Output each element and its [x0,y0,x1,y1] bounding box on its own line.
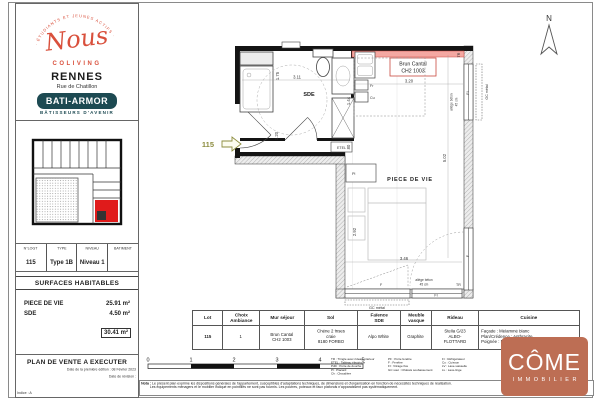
guardrail-right [476,64,482,120]
svg-text:CH2 1003: CH2 1003 [401,69,424,75]
col-header-choix: Choix Ambiance [230,313,252,323]
cell-rideau: Stella G/23 ALBO-FLOTTARD [438,330,471,345]
type-header: TYPE [57,247,66,251]
builder-tagline: BÂTISSEURS D'AVENIR [31,111,123,116]
legend-item: GC sout : Châssis soubassement [388,369,433,373]
room-label-piece-de-vie: PIECE DE VIE [387,177,433,183]
col-header-meuble: Meuble vasque [408,313,424,323]
surfaces-block: SURFACES HABITABLES PIECE DE VIE 25.91 m… [16,272,138,354]
svg-text:allège béton: allège béton [415,278,433,282]
surface-total: 30.41 m² [101,328,131,338]
come-immobilier-logo: CÔME IMMOBILIER [501,337,588,396]
come-logo-text: CÔME [508,350,581,374]
svg-text:3: 3 [275,358,278,364]
fridge-label: Fr [370,84,374,88]
sidebar-footer: PLAN DE VENTE A EXECUTER Date de la prem… [16,354,138,397]
svg-text:1.44: 1.44 [346,96,351,105]
revision-date: Date de révision : [66,375,136,379]
legend-item: LL : Lave-linge [442,369,467,373]
svg-text:80: 80 [346,144,351,149]
come-logo-subtitle: IMMOBILIER [509,377,580,383]
plan-title: PLAN DE VENTE A EXECUTER [16,355,138,366]
key-plan-drawing [31,138,123,226]
lot-info-table: N°LOGT 115 TYPE Type 1B NIVEAU Niveau 1 … [16,244,138,272]
svg-text:Pl: Pl [352,172,356,176]
builder-logo: BATI-ARMOR [37,93,117,109]
col-header-mur: Mur séjour [270,315,294,320]
window-f-bottom [345,265,410,298]
placard: Pl [346,164,376,182]
svg-text:4: 4 [318,358,321,364]
accent-wall-label: Brun Cantal CH2 1003 [390,58,436,76]
svg-text:0: 0 [146,358,149,364]
cell-lot: 115 [204,335,211,340]
svg-text:TR: TR [456,283,461,287]
sde-fixtures [240,49,354,138]
svg-text:2: 2 [232,358,235,364]
surface-row: SDE 4.50 m² [24,311,130,317]
first-edition-date: Date de la première édition : 08 Février… [66,368,136,372]
svg-text:1.20: 1.20 [274,131,279,140]
surface-value: 25.91 m² [106,301,130,307]
index-label: Indice : A [17,391,32,395]
legend-item: Ch : Chaudière [331,372,375,376]
svg-text:Brun Cantal: Brun Cantal [399,62,426,68]
svg-text:1.75: 1.75 [275,71,280,80]
svg-text:45 cm: 45 cm [455,97,459,106]
svg-text:TR: TR [457,52,461,57]
brand-subname: COLIVING [16,61,138,67]
cell-choix: 1 [240,335,242,340]
project-city: RENNES [16,71,138,83]
cooktop-label: Cu [370,96,375,100]
col-header-sol: Sol [327,315,334,320]
cell-faience: Alpo White [369,335,390,340]
svg-text:5.02: 5.02 [442,153,447,162]
lot-type: Type 1B [47,254,77,271]
building-header: BATIMENT [114,247,132,251]
key-stairs [97,211,106,220]
svg-text:FI: FI [434,294,437,298]
bed [348,188,426,260]
svg-text:45 cm: 45 cm [420,283,429,287]
kitchen [355,52,375,102]
svg-text:N: N [546,14,552,23]
svg-text:FI: FI [466,91,470,94]
cell-sol: Chêne 2 frises craie 8180 FORBO [312,330,349,345]
level-header: NIVEAU [86,247,99,251]
svg-text:3.11: 3.11 [293,75,302,80]
unit-number-label: 115 [202,140,214,149]
svg-text:3.46: 3.46 [400,256,409,261]
cell-meuble: Graphite [408,335,425,340]
cell-mur: Brun Cantal CH2 1003 [271,333,294,343]
surface-value: 4.50 m² [109,311,130,317]
lot-number: 115 [16,254,46,271]
project-street: Rue de Chatillon [16,84,138,90]
surface-label: PIECE DE VIE [24,301,63,307]
svg-text:3.20: 3.20 [405,79,414,84]
svg-text:GC métal: GC métal [485,84,489,99]
col-header-rideau: Rideau [447,315,463,320]
north-arrow: N [541,14,557,54]
svg-text:ETEL: ETEL [337,146,346,150]
sidebar: · ÉTUDIANTS ET JEUNES ACTIFS · Nous COLI… [15,3,139,398]
key-plan [16,121,138,244]
room-label-sde: SDE [303,92,315,98]
brand-block: · ÉTUDIANTS ET JEUNES ACTIFS · Nous COLI… [16,4,138,121]
lot-level: Niveau 1 [77,254,107,271]
surfaces-title: SURFACES HABITABLES [16,276,138,290]
svg-text:F: F [380,283,383,287]
svg-text:1: 1 [189,358,192,364]
lot-header: N°LOGT [24,247,38,251]
surface-label: SDE [24,311,36,317]
col-header-cuisine: Cuisine [521,315,538,320]
col-header-lot: Lot [204,315,211,320]
brand-script: Nous [43,21,110,57]
guardrail-bottom [345,300,409,305]
plan-sheet: · ÉTUDIANTS ET JEUNES ACTIFS · Nous COLI… [0,0,600,400]
svg-text:allège béton: allège béton [450,93,454,111]
svg-text:2.92: 2.92 [352,227,357,236]
vent-box [282,42,300,48]
key-courtyard [36,178,78,222]
floor-plan: N [140,5,595,311]
nous-logo: · ÉTUDIANTS ET JEUNES ACTIFS · Nous [16,4,138,60]
col-header-faience: Faïence SDE [370,313,387,323]
lot-building [108,254,138,271]
surface-row: PIECE DE VIE 25.91 m² [24,301,130,307]
